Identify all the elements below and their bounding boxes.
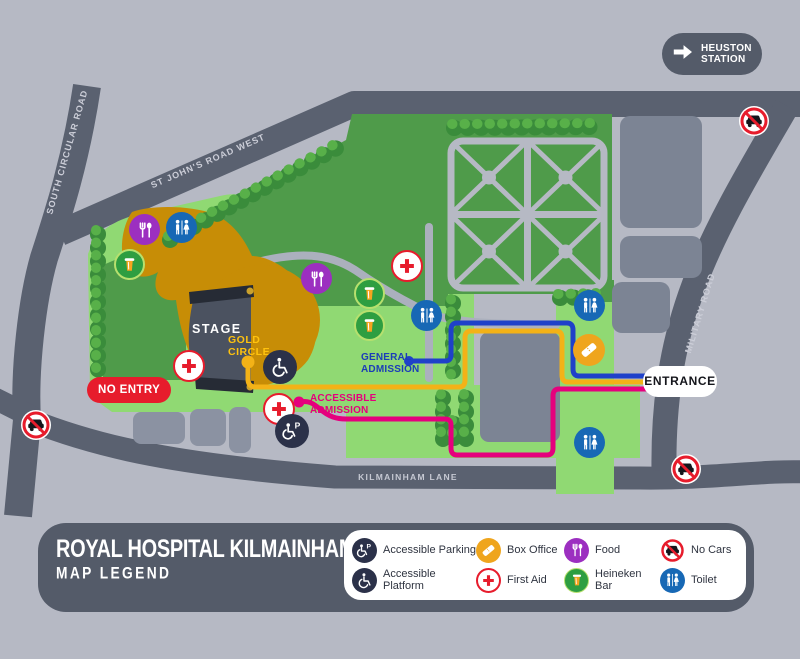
legend-item: No Cars (660, 538, 738, 563)
general-admission-label: GENERAL ADMISSION (361, 352, 419, 375)
food-icon (564, 538, 589, 563)
heineken-bar-icon (354, 310, 385, 341)
first-aid-icon (476, 568, 501, 593)
legend-items-panel: Accessible Parking Box Office Food No Ca… (344, 530, 746, 600)
legend-item: Accessible Parking (352, 538, 476, 563)
accessible-parking-icon (275, 414, 309, 448)
no-cars-icon (660, 538, 685, 563)
no-cars-icon (671, 454, 701, 484)
arrow-right-icon (670, 39, 696, 70)
entrance-badge: ENTRANCE (643, 366, 717, 397)
heuston-station-badge: HEUSTON STATION (662, 33, 762, 75)
legend-subtitle: MAP LEGEND (56, 565, 171, 583)
legend-item: Toilet (660, 568, 738, 593)
toilet-icon (574, 427, 605, 458)
toilet-icon (166, 212, 197, 243)
legend-item: Box Office (476, 538, 564, 563)
first-aid-icon (391, 250, 423, 282)
map-legend-panel: ROYAL HOSPITAL KILMAINHAM MAP LEGEND Acc… (38, 523, 754, 612)
toilet-icon (411, 300, 442, 331)
gold-circle-label: GOLD CIRCLE (228, 334, 270, 358)
accessible-admission-label: ACCESSIBLE ADMISSION (310, 393, 376, 416)
heineken-bar-icon (354, 278, 385, 309)
food-icon (129, 214, 160, 245)
box-office-icon (476, 538, 501, 563)
legend-title: ROYAL HOSPITAL KILMAINHAM (56, 536, 355, 564)
road-label-kilmainham: KILMAINHAM LANE (348, 472, 468, 482)
accessible-parking-icon (352, 538, 377, 563)
no-entry-badge: NO ENTRY (87, 377, 171, 403)
heineken-bar-icon (114, 249, 145, 280)
food-icon (301, 263, 332, 294)
first-aid-icon (173, 350, 205, 382)
no-cars-icon (21, 410, 51, 440)
formal-garden (451, 141, 604, 288)
legend-item: First Aid (476, 568, 564, 593)
accessible-platform-icon (352, 568, 377, 593)
legend-item: Food (564, 538, 660, 563)
heineken-bar-icon (564, 568, 589, 593)
venue-map: P (0, 0, 800, 659)
accessible-platform-icon (263, 350, 297, 384)
no-cars-icon (739, 106, 769, 136)
legend-item: Accessible Platform (352, 568, 476, 593)
legend-item: Heineken Bar (564, 568, 660, 593)
toilet-icon (574, 290, 605, 321)
toilet-icon (660, 568, 685, 593)
box-office-icon (573, 334, 605, 366)
